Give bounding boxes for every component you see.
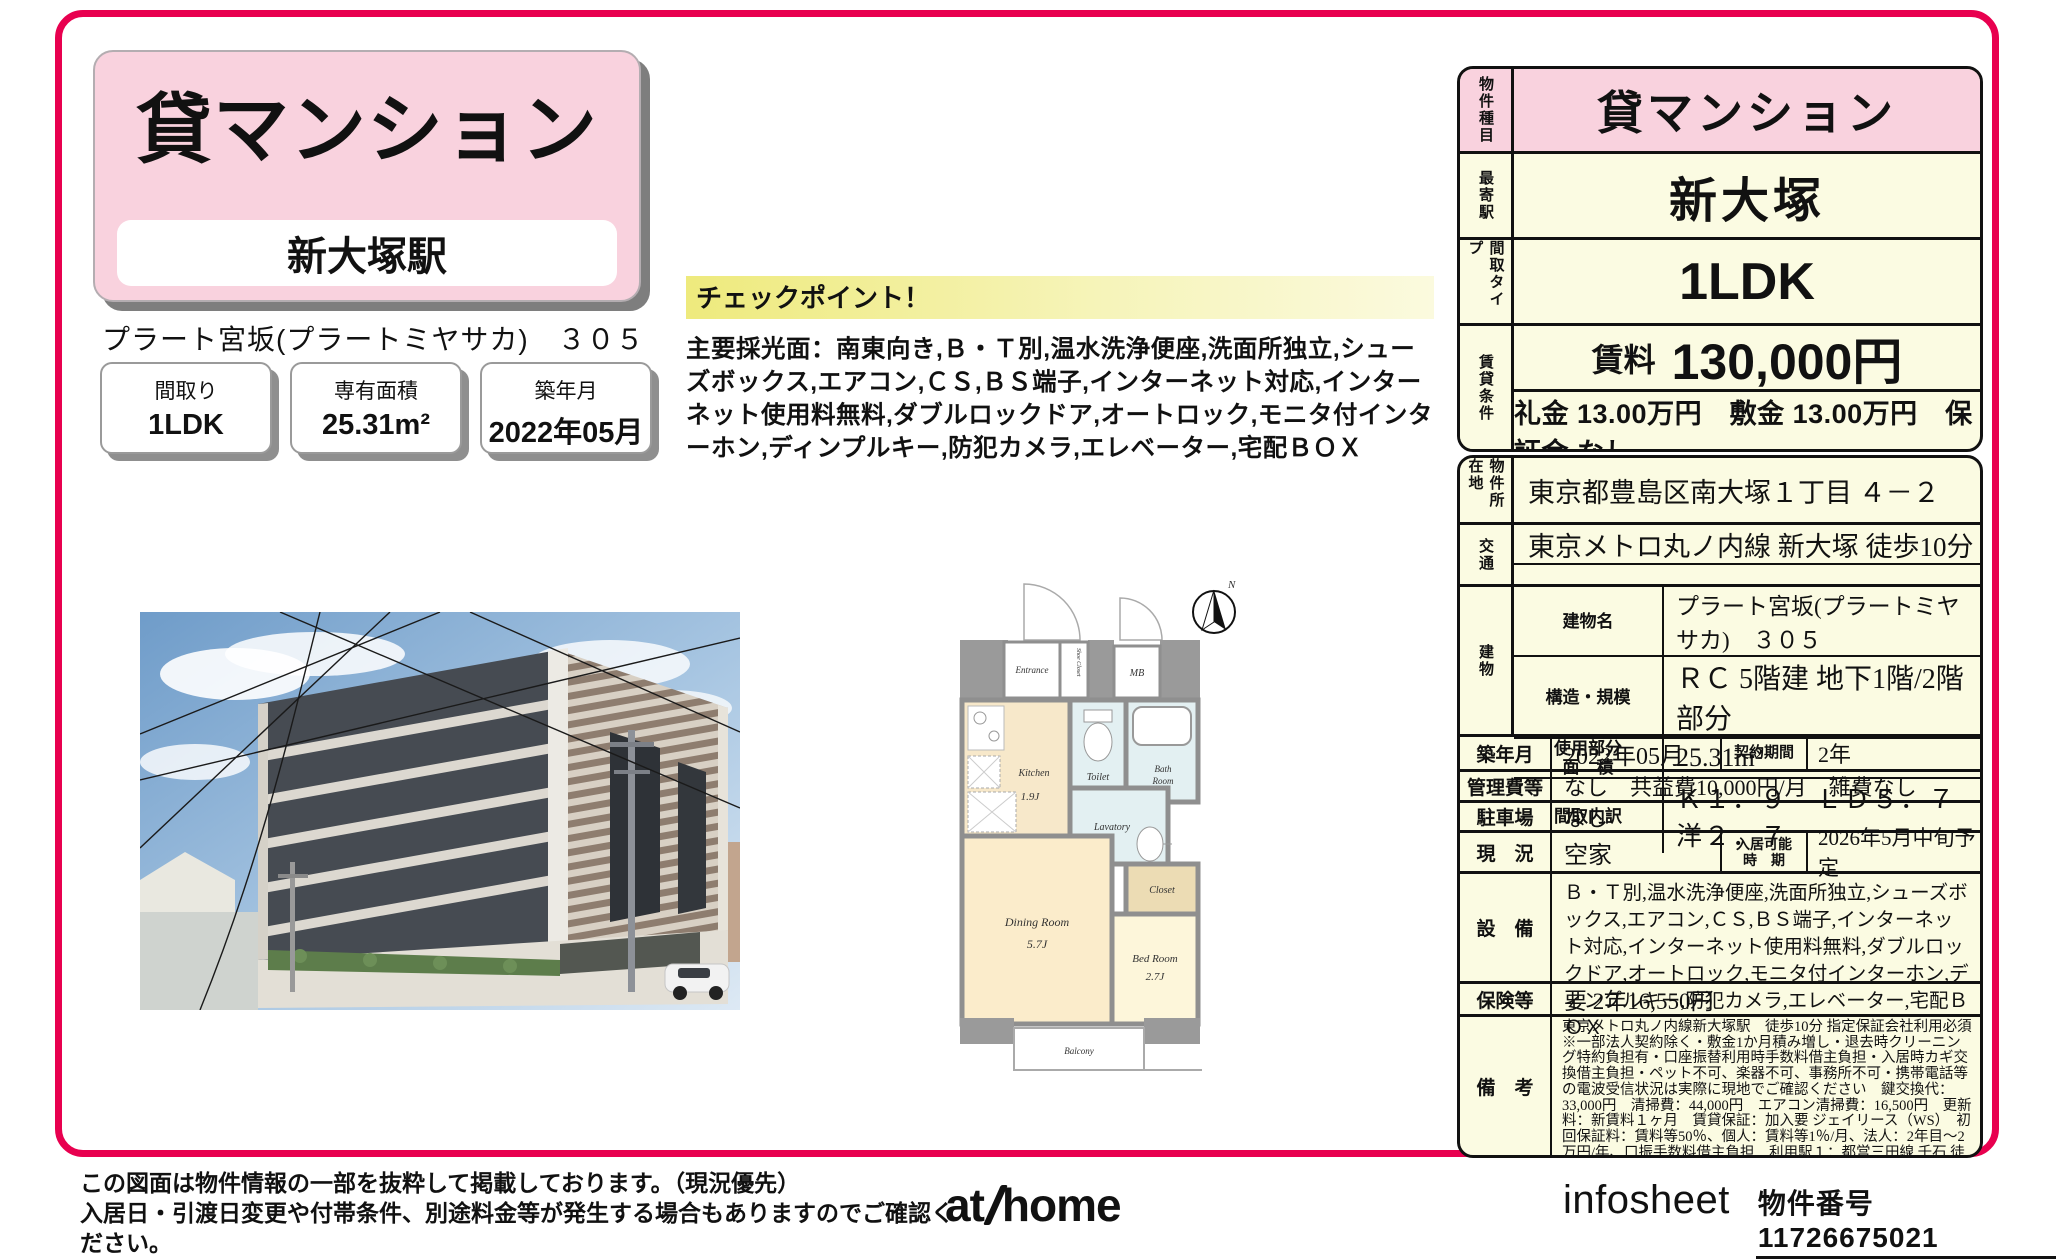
summary-layout-label: 間取タイプ bbox=[1460, 240, 1514, 323]
bath-label-2: Room bbox=[1152, 776, 1174, 786]
dining-label: Dining Room bbox=[1004, 915, 1070, 929]
structure-label: 構造・規模 bbox=[1514, 657, 1664, 737]
entrance-label: Entrance bbox=[1015, 665, 1049, 675]
property-number: 物件番号 11726675021 bbox=[1756, 1182, 2056, 1259]
building-name-label: 建物名 bbox=[1514, 587, 1664, 655]
athome-logo-home: home bbox=[1002, 1178, 1121, 1232]
remarks-value: 東京メトロ丸ノ内線新大塚駅 徒歩10分 指定保証会社利用必須※一部法人契約除く・… bbox=[1552, 1017, 1980, 1155]
bed-label: Bed Room bbox=[1132, 953, 1178, 965]
summary-table: 物件種目 貸マンション 最寄駅 新大塚 間取タイプ 1LDK 賃貸条件 賃料 1… bbox=[1457, 66, 1983, 452]
stat-box-layout: 間取り 1LDK bbox=[100, 362, 272, 454]
infosheet-label: infosheet bbox=[1563, 1178, 1730, 1223]
athome-logo: at home bbox=[945, 1178, 1121, 1232]
structure-value: ＲＣ 5階建 地下1階/2階部分 bbox=[1664, 657, 1980, 737]
footer-note-line2: 入居日・引渡日変更や付帯条件、別途料金等が発生する場合もありますのでご確認くださ… bbox=[80, 1198, 960, 1258]
summary-layout-value: 1LDK bbox=[1514, 240, 1980, 323]
stat-label: 専有面積 bbox=[292, 375, 460, 405]
movein-value: 2026年5月中旬予定 bbox=[1808, 833, 1980, 871]
equipment-label: 設 備 bbox=[1460, 874, 1552, 981]
status-value: 空家 bbox=[1552, 833, 1720, 871]
kitchen-size: 1.9J bbox=[1021, 791, 1041, 803]
kitchen-label: Kitchen bbox=[1017, 768, 1049, 779]
summary-station-value: 新大塚 bbox=[1514, 154, 1980, 237]
address-value: 東京都豊島区南大塚１丁目 ４－２ bbox=[1514, 458, 1980, 522]
building-photo bbox=[140, 612, 740, 1010]
fees-label: 管理費等 bbox=[1460, 772, 1552, 800]
footer-disclaimer: この図面は物件情報の一部を抜粋して掲載しております。（現況優先） 入居日・引渡日… bbox=[80, 1168, 960, 1258]
mb-label: MB bbox=[1129, 668, 1144, 679]
building-name-value: プラート宮坂(プラートミヤサカ) ３０５ bbox=[1664, 587, 1980, 655]
page-title: 貸マンション bbox=[95, 68, 639, 178]
fees-value: なし 共益費10,000円/月 雑費なし bbox=[1552, 772, 1980, 800]
stat-boxes: 間取り 1LDK 専有面積 25.31m² 築年月 2022年05月 bbox=[100, 362, 652, 454]
stat-value: 25.31m² bbox=[292, 409, 460, 442]
deposit-terms: 礼金 13.00万円 敷金 13.00万円 保証金 なし bbox=[1514, 392, 1980, 452]
rent-value: 130,000円 bbox=[1672, 322, 1903, 394]
access-value: 東京メトロ丸ノ内線 新大塚 徒歩10分 bbox=[1514, 525, 1980, 565]
stat-label: 築年月 bbox=[482, 375, 650, 405]
remarks-label: 備 考 bbox=[1460, 1017, 1552, 1155]
infosheet-brand: infosheet 物件番号 11726675021 bbox=[1563, 1178, 2056, 1259]
title-box: 貸マンション 新大塚駅 bbox=[93, 50, 641, 302]
bath-label-1: Bath bbox=[1155, 764, 1172, 774]
stat-box-area: 専有面積 25.31m² bbox=[290, 362, 462, 454]
movein-label-line1: 入居可能 bbox=[1736, 836, 1792, 852]
stat-value: 1LDK bbox=[102, 409, 270, 442]
lavatory-label: Lavatory bbox=[1093, 822, 1131, 833]
summary-type-label: 物件種目 bbox=[1460, 69, 1514, 151]
athome-logo-at: at bbox=[945, 1178, 984, 1232]
contract-value: 2年 bbox=[1808, 737, 1980, 769]
toilet-label: Toilet bbox=[1087, 772, 1110, 783]
movein-label-line2: 時 期 bbox=[1743, 852, 1785, 868]
closet-label: Closet bbox=[1149, 885, 1175, 896]
shoe-closet-label: Shoe Closet bbox=[1075, 648, 1081, 677]
summary-type-value: 貸マンション bbox=[1514, 69, 1980, 151]
parking-label: 駐車場 bbox=[1460, 803, 1552, 830]
movein-label: 入居可能 時 期 bbox=[1720, 833, 1808, 871]
balcony-label: Balcony bbox=[1064, 1046, 1094, 1056]
checkpoint-body: 主要採光面：南東向き,Ｂ・Ｔ別,温水洗浄便座,洗面所独立,シューズボックス,エア… bbox=[686, 333, 1434, 465]
stat-value: 2022年05月 bbox=[482, 409, 650, 451]
bed-size: 2.7J bbox=[1146, 971, 1166, 983]
insurance-label: 保険等 bbox=[1460, 984, 1552, 1014]
stat-label: 間取り bbox=[102, 375, 270, 405]
detail-table: 物件所在地 東京都豊島区南大塚１丁目 ４－２ 交通 東京メトロ丸ノ内線 新大塚 … bbox=[1457, 455, 1983, 1158]
property-name-line: プラート宮坂(プラートミヤサカ) ３０５ bbox=[102, 318, 702, 358]
footer-note-line1: この図面は物件情報の一部を抜粋して掲載しております。（現況優先） bbox=[80, 1168, 960, 1198]
stat-box-built: 築年月 2022年05月 bbox=[480, 362, 652, 454]
rent-label: 賃料 bbox=[1592, 335, 1656, 381]
summary-station-label: 最寄駅 bbox=[1460, 154, 1514, 237]
status-label: 現 況 bbox=[1460, 833, 1552, 871]
access-label: 交通 bbox=[1460, 525, 1514, 584]
access-value-2 bbox=[1514, 565, 1980, 584]
built-label: 築年月 bbox=[1460, 737, 1552, 769]
north-label: N bbox=[1227, 579, 1236, 591]
checkpoint-heading: チェックポイント！ bbox=[686, 276, 1434, 319]
dining-size: 5.7J bbox=[1027, 937, 1048, 951]
checkpoint-section: チェックポイント！ 主要採光面：南東向き,Ｂ・Ｔ別,温水洗浄便座,洗面所独立,シ… bbox=[686, 276, 1434, 465]
floor-plan: N Entrance Shoe Closet MB Kitchen 1.9J T… bbox=[952, 576, 1252, 1074]
station-title: 新大塚駅 bbox=[117, 220, 617, 286]
address-label: 物件所在地 bbox=[1460, 458, 1514, 522]
contract-label: 契約期間 bbox=[1720, 737, 1808, 769]
summary-terms-label: 賃貸条件 bbox=[1460, 326, 1514, 449]
building-label: 建物 bbox=[1460, 587, 1514, 734]
built-value: 2022年05月 bbox=[1552, 737, 1720, 769]
insurance-value: 要 2年16,550円 bbox=[1552, 984, 1980, 1014]
equipment-value: Ｂ・Ｔ別,温水洗浄便座,洗面所独立,シューズボックス,エアコン,ＣＳ,ＢＳ端子,… bbox=[1552, 874, 1980, 981]
